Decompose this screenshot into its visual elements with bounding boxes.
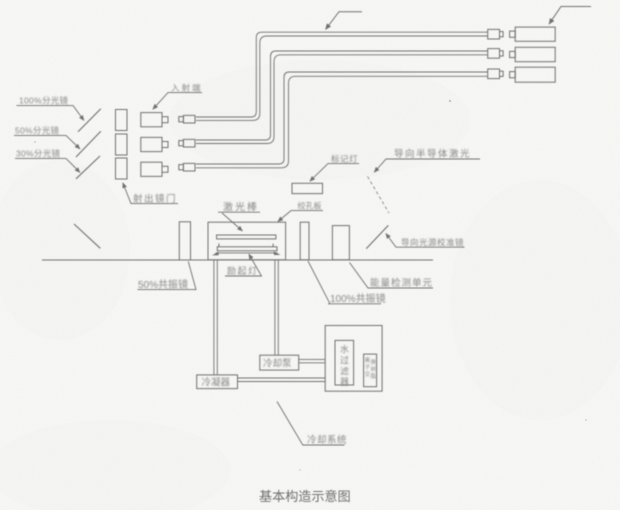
svg-text:射出镜门: 射出镜门: [133, 193, 177, 205]
svg-text:100%分光镜: 100%分光镜: [19, 96, 69, 106]
svg-text:冷却泵: 冷却泵: [263, 358, 292, 370]
svg-text:树: 树: [371, 365, 377, 373]
svg-text:冷凝器: 冷凝器: [202, 377, 231, 389]
svg-text:激光棒: 激光棒: [223, 201, 259, 214]
svg-text:励起灯: 励起灯: [227, 266, 259, 276]
svg-text:脂: 脂: [371, 372, 377, 380]
svg-text:水: 水: [340, 344, 349, 355]
svg-text:冷却系统: 冷却系统: [307, 434, 347, 446]
svg-text:能量检测单元: 能量检测单元: [370, 277, 433, 289]
svg-text:滤: 滤: [340, 366, 349, 377]
svg-text:基本构造示意图: 基本构造示意图: [259, 488, 351, 504]
svg-text:器: 器: [340, 377, 349, 387]
svg-text:过: 过: [340, 355, 349, 366]
svg-text:导向光源校准镜: 导向光源校准镜: [401, 238, 464, 248]
svg-text:50%共振镜: 50%共振镜: [138, 278, 188, 291]
svg-text:换: 换: [371, 358, 377, 366]
svg-text:100%共振镜: 100%共振镜: [330, 292, 386, 305]
svg-text:绞孔板: 绞孔板: [298, 201, 322, 211]
svg-text:30%分光镜: 30%分光镜: [16, 149, 61, 159]
svg-text:50%分光镜: 50%分光镜: [15, 126, 60, 136]
